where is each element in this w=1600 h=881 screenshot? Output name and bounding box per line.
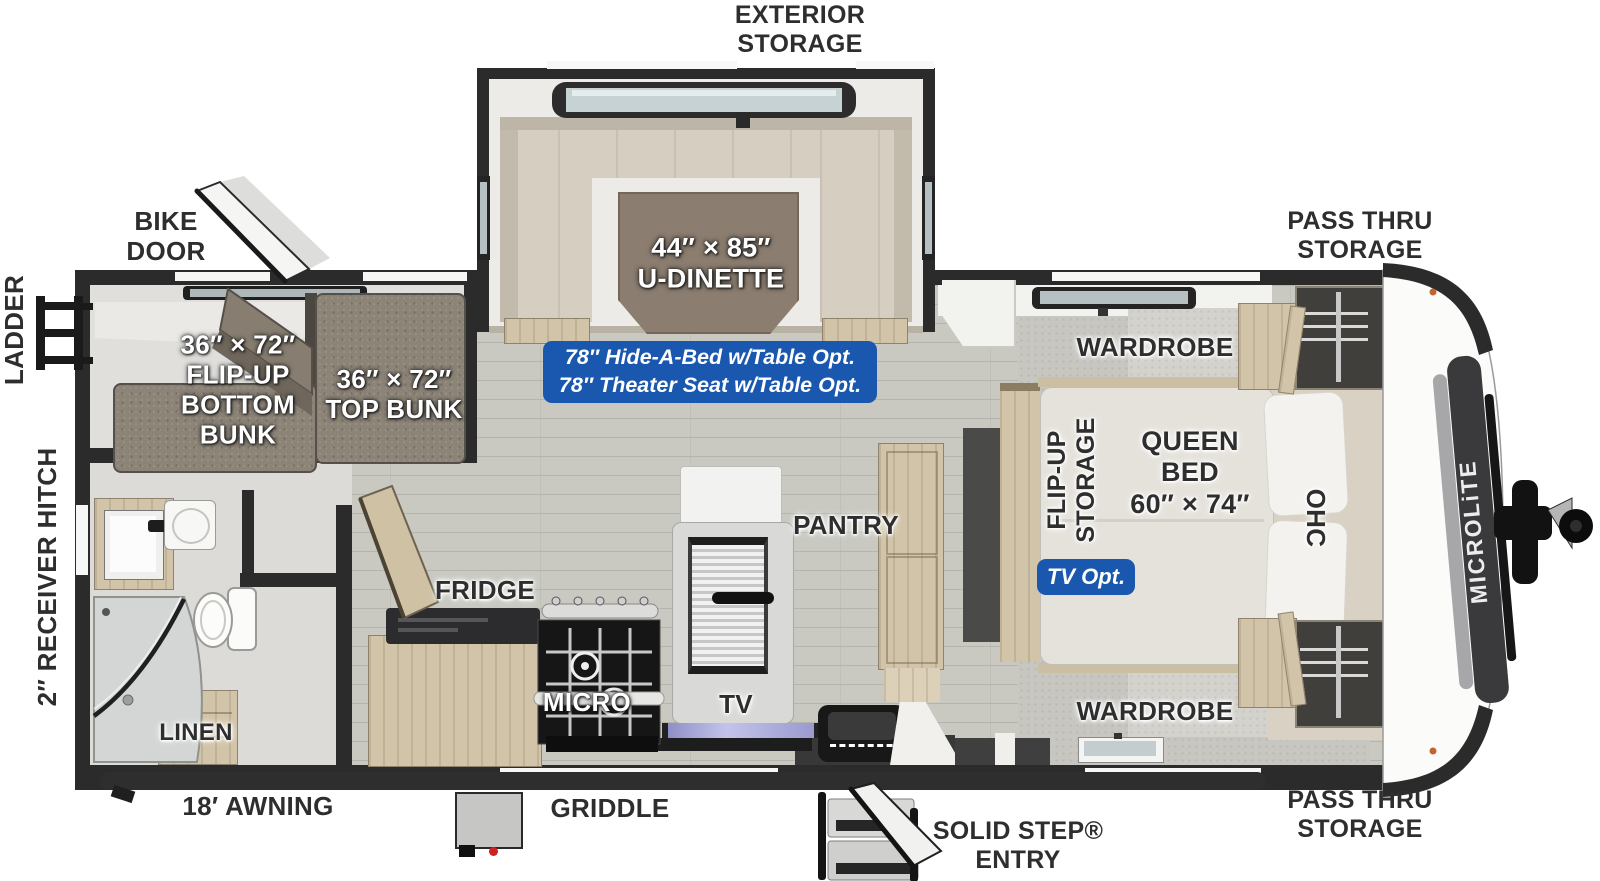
label-ohc: OHC — [1301, 489, 1331, 548]
label-wardrobe-bottom: WARDROBE — [1077, 696, 1234, 726]
pantry-door-panel — [886, 556, 938, 664]
entry-side-wall — [995, 733, 1015, 765]
label-awning: 18′ AWNING — [182, 791, 333, 821]
bike-door-flap — [197, 182, 309, 281]
slide-window-right-glass — [925, 182, 932, 254]
slide-skylight-clamp — [736, 112, 750, 128]
dinette-bench-left-back — [500, 130, 518, 322]
window-strip — [856, 61, 934, 69]
label-bottom-bunk: 36″ × 72″FLIP-UP BOTTOMBUNK — [180, 330, 295, 451]
entry-sink-bowl — [828, 712, 896, 740]
wall-bath-right — [336, 505, 352, 765]
entry-steps — [818, 792, 918, 881]
wall-bath-divider-v — [242, 490, 254, 587]
brand-text: MICROLiTE — [1454, 459, 1492, 605]
bike-door-shadow — [220, 176, 330, 269]
label-pass-thru-top: PASS THRUSTORAGE — [1287, 207, 1432, 265]
griddle-foot — [459, 845, 475, 857]
label-ladder: LADDER — [0, 275, 29, 385]
slide-wall-top — [477, 68, 935, 79]
label-flip-up-storage: FLIP-UPSTORAGE — [1043, 417, 1101, 542]
window-strip — [175, 272, 270, 281]
linen-shelf-line — [162, 712, 232, 714]
label-receiver-hitch: 2″ RECEIVER HITCH — [32, 448, 62, 707]
island-tv-handle — [712, 592, 774, 604]
fridge-top — [386, 608, 540, 644]
label-pantry: PANTRY — [793, 510, 899, 540]
fridge-vent — [398, 628, 458, 632]
badge-line: 78″ Theater Seat w/Table Opt. — [559, 372, 861, 400]
window-strip — [363, 272, 467, 281]
dinette-bench-back-top — [500, 117, 912, 130]
wardrobe-rod — [1300, 648, 1368, 651]
flip-up-storage-front — [1000, 383, 1040, 662]
label-tv: TV — [719, 689, 753, 719]
pantry-base — [884, 668, 940, 702]
label-top-bunk: 36″ × 72″TOP BUNK — [325, 364, 462, 424]
fridge-cabinet — [368, 635, 542, 767]
label-pass-thru-bottom: PASS THRUSTORAGE — [1287, 786, 1432, 844]
entry-door-flap — [851, 783, 941, 866]
bedroom-window-bottom-glass — [1084, 741, 1156, 756]
entry-sink-dots — [830, 744, 902, 747]
awning-rail — [100, 772, 1266, 790]
label-exterior-storage: EXTERIORSTORAGE — [735, 1, 865, 59]
floorplan-canvas: MICROLiTE 78″ Hide-A-Bed w/Table Opt. 78… — [0, 0, 1600, 881]
label-queen-bed: QUEENBED60″ × 74″ — [1130, 426, 1249, 520]
island-top-cabinet — [680, 466, 782, 528]
bedroom-window-bottom-knob — [1114, 733, 1122, 739]
bedroom-window-knob — [1098, 308, 1108, 316]
label-micro: MICRO — [543, 687, 631, 717]
label-fridge: FRIDGE — [435, 575, 535, 605]
tv-shelf — [656, 738, 812, 751]
fridge-vent — [398, 618, 488, 622]
label-wardrobe-top: WARDROBE — [1077, 332, 1234, 362]
bath-sink-bowl — [172, 508, 210, 544]
window-strip — [1052, 272, 1260, 281]
flip-up-storage-edge — [1000, 383, 1040, 391]
wall-bath-divider-h — [240, 573, 352, 587]
window-strip — [76, 505, 88, 575]
griddle-knob — [489, 847, 498, 856]
microlite-decal: MICROLiTE — [1431, 354, 1520, 706]
wardrobe-divider — [1336, 626, 1341, 718]
slide-window-left-glass — [480, 182, 487, 254]
tv-opt-badge: TV Opt. — [1037, 559, 1135, 595]
tv-opt-wall — [963, 428, 1000, 642]
label-griddle: GRIDDLE — [550, 793, 669, 823]
tv-screen — [662, 723, 820, 738]
island-tv-mount — [688, 537, 768, 674]
wardrobe-rod — [1300, 674, 1368, 677]
hide-a-bed-option-badge: 78″ Hide-A-Bed w/Table Opt. 78″ Theater … — [543, 341, 877, 403]
wardrobe-rod — [1300, 661, 1368, 664]
cap-marker — [1430, 748, 1437, 755]
label-linen: LINEN — [159, 719, 233, 747]
wardrobe-rod — [1300, 312, 1368, 315]
badge-line: TV Opt. — [1047, 564, 1125, 590]
label-u-dinette: 44″ × 85″U-DINETTE — [638, 233, 785, 296]
cap-marker — [1430, 289, 1437, 296]
dinette-bench-right-back — [894, 130, 912, 322]
label-solid-step-entry: SOLID STEP®ENTRY — [933, 817, 1103, 875]
wardrobe-divider — [1336, 292, 1341, 382]
tongue-jack — [1494, 480, 1593, 584]
window-strip — [547, 61, 737, 69]
wardrobe-rod — [1300, 325, 1368, 328]
wardrobe-rod — [1300, 338, 1368, 341]
badge-line: 78″ Hide-A-Bed w/Table Opt. — [565, 344, 855, 372]
label-bike-door: BIKEDOOR — [126, 206, 205, 266]
front-cap: MICROLiTE — [1383, 263, 1593, 797]
griddle-unit — [455, 792, 523, 849]
slide-skylight-streak — [572, 90, 836, 96]
bedroom-window-top-glass — [1040, 291, 1188, 304]
